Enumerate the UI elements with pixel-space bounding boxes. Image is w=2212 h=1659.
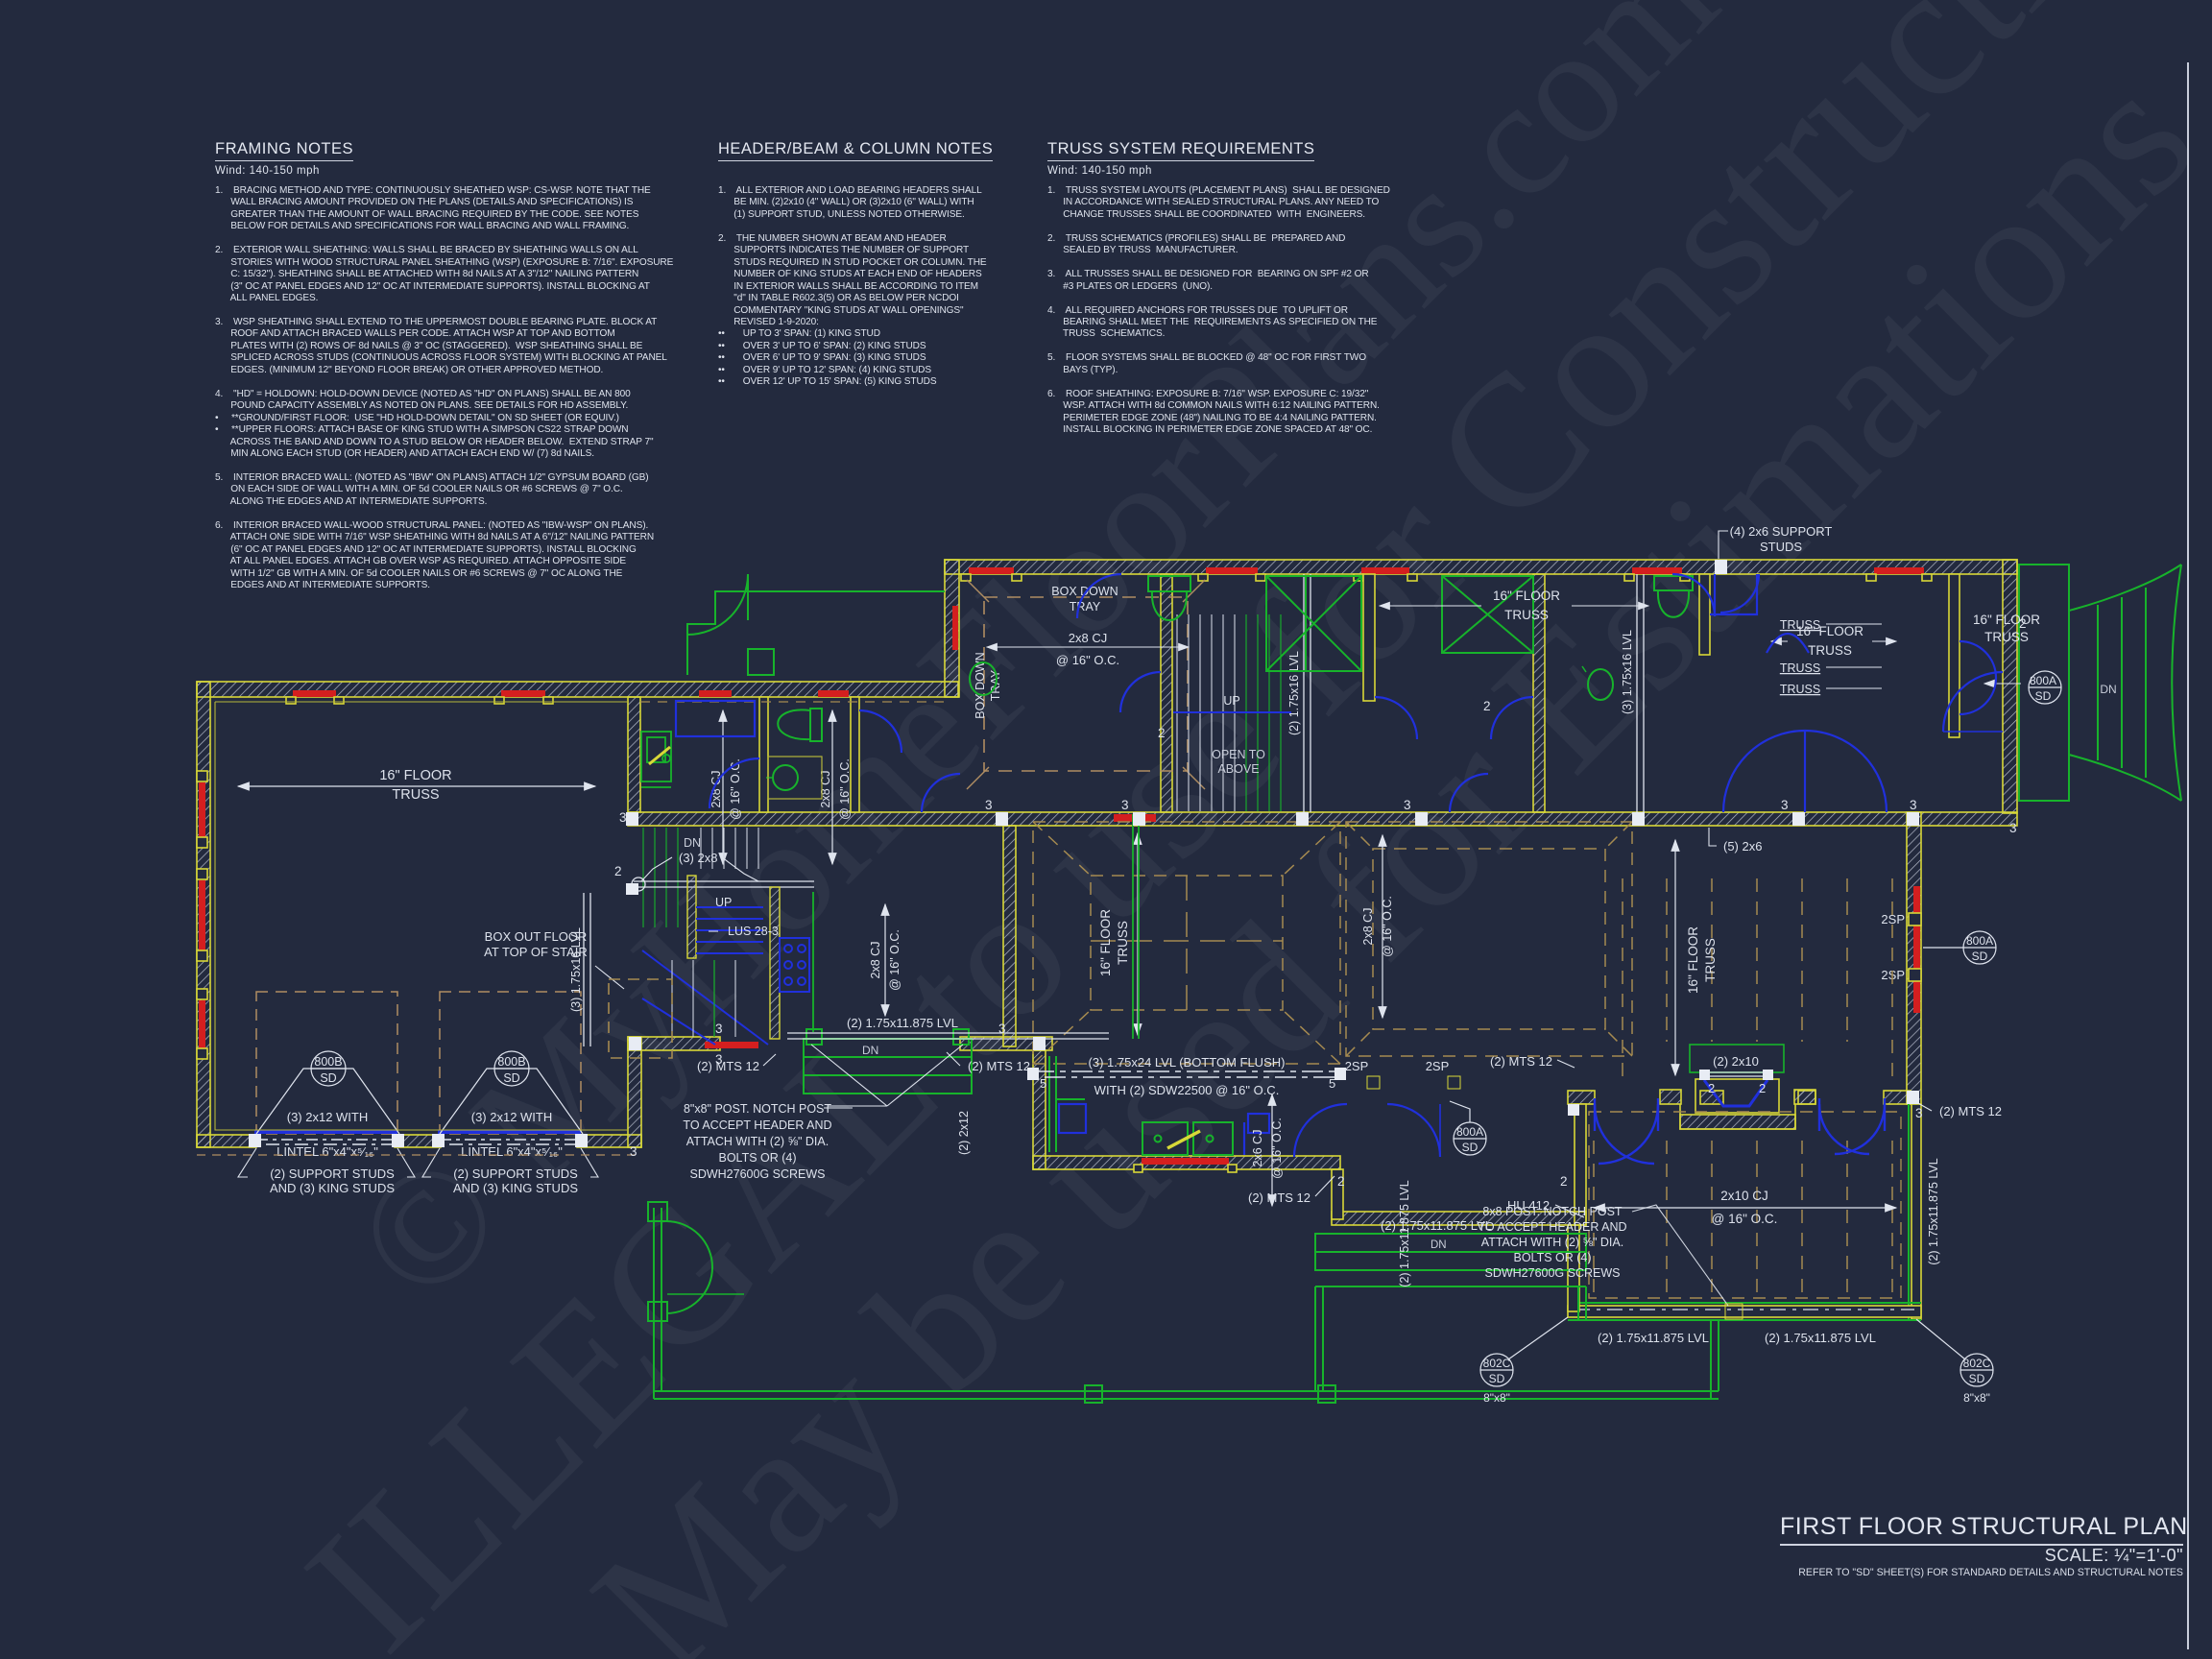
svg-text:16" FLOOR: 16" FLOOR	[379, 768, 451, 783]
svg-text:OPEN TO: OPEN TO	[1212, 748, 1265, 761]
svg-text:3: 3	[1404, 798, 1411, 812]
svg-text:@ 16" O.C.: @ 16" O.C.	[1270, 1118, 1284, 1179]
svg-text:SD: SD	[1489, 1372, 1505, 1385]
svg-text:TRUSS: TRUSS	[1780, 661, 1820, 675]
svg-text:802C: 802C	[1963, 1357, 1991, 1370]
svg-text:(2) MTS 12: (2) MTS 12	[1490, 1054, 1552, 1069]
svg-text:(2) MTS 12: (2) MTS 12	[968, 1059, 1030, 1073]
svg-text:8x8 POST. NOTCH POST: 8x8 POST. NOTCH POST	[1482, 1205, 1623, 1218]
svg-text:2: 2	[614, 864, 622, 878]
svg-text:AND (3) KING STUDS: AND (3) KING STUDS	[453, 1181, 578, 1195]
svg-text:(3) 2x8: (3) 2x8	[679, 851, 717, 865]
svg-text:TRUSS: TRUSS	[1984, 630, 2029, 644]
svg-text:16" FLOOR: 16" FLOOR	[1098, 909, 1113, 976]
svg-text:(2) MTS 12: (2) MTS 12	[1939, 1104, 2002, 1118]
svg-text:16" FLOOR: 16" FLOOR	[1973, 613, 2040, 627]
svg-text:(2) 1.75x11.875 LVL: (2) 1.75x11.875 LVL	[847, 1016, 958, 1030]
svg-text:AT TOP OF STAIR: AT TOP OF STAIR	[484, 945, 588, 959]
svg-text:(3) 1.75x24 LVL (BOTTOM FLUSH): (3) 1.75x24 LVL (BOTTOM FLUSH)	[1089, 1055, 1286, 1070]
svg-text:800B: 800B	[497, 1055, 525, 1069]
svg-text:ATTACH WITH (2) ⅝" DIA.: ATTACH WITH (2) ⅝" DIA.	[686, 1135, 829, 1148]
svg-text:SD: SD	[1972, 950, 1988, 963]
svg-text:2x6 CJ: 2x6 CJ	[1251, 1130, 1264, 1167]
svg-text:2x8 CJ: 2x8 CJ	[819, 771, 832, 808]
svg-text:2: 2	[1337, 1174, 1345, 1189]
svg-text:2: 2	[1708, 1081, 1715, 1095]
svg-text:SD: SD	[320, 1071, 336, 1085]
svg-text:TRUSS: TRUSS	[392, 787, 439, 803]
svg-text:3: 3	[998, 1022, 1006, 1036]
svg-text:(3) 2x12 WITH: (3) 2x12 WITH	[471, 1110, 553, 1124]
svg-text:3: 3	[1910, 798, 1917, 812]
svg-text:3: 3	[715, 1052, 723, 1067]
svg-text:(3) 2x12 WITH: (3) 2x12 WITH	[287, 1110, 369, 1124]
svg-text:3: 3	[1781, 798, 1789, 812]
svg-text:WITH (2) SDW22500 @ 16" O.C.: WITH (2) SDW22500 @ 16" O.C.	[1094, 1083, 1280, 1097]
svg-text:3: 3	[619, 810, 627, 825]
svg-text:(2) 1.75x11.875 LVL: (2) 1.75x11.875 LVL	[1598, 1331, 1709, 1345]
svg-text:2: 2	[1560, 1174, 1568, 1189]
svg-text:(2) 1.75x11.875 LVL: (2) 1.75x11.875 LVL	[1398, 1180, 1411, 1286]
svg-text:UP: UP	[1223, 694, 1239, 708]
svg-text:LINTEL 6"x4"x⁵⁄₁₆": LINTEL 6"x4"x⁵⁄₁₆"	[276, 1144, 378, 1159]
svg-text:DN: DN	[684, 836, 701, 850]
svg-text:AND (3) KING STUDS: AND (3) KING STUDS	[270, 1181, 395, 1195]
svg-text:BOLTS OR (4): BOLTS OR (4)	[1513, 1251, 1591, 1264]
svg-text:802C: 802C	[1483, 1357, 1511, 1370]
svg-text:3: 3	[985, 798, 993, 812]
svg-text:2x8 CJ: 2x8 CJ	[1361, 908, 1375, 946]
svg-text:2: 2	[1158, 726, 1166, 740]
svg-text:3: 3	[1121, 798, 1129, 812]
svg-text:(2) 1.75x11.875 LVL: (2) 1.75x11.875 LVL	[1927, 1158, 1940, 1264]
svg-text:2x8 CJ: 2x8 CJ	[1069, 631, 1107, 645]
svg-text:BOX OUT FLOOR: BOX OUT FLOOR	[485, 929, 588, 944]
svg-text:SD: SD	[503, 1071, 519, 1085]
svg-text:(2) 1.75x16 LVL: (2) 1.75x16 LVL	[1287, 651, 1301, 735]
svg-text:(5) 2x6: (5) 2x6	[1723, 839, 1762, 854]
svg-text:@ 16" O.C.: @ 16" O.C.	[1056, 653, 1119, 667]
svg-text:UP: UP	[715, 896, 732, 909]
svg-text:TRUSS: TRUSS	[1504, 608, 1549, 622]
svg-text:2SP: 2SP	[1426, 1059, 1450, 1073]
svg-text:(2) 2x10: (2) 2x10	[1713, 1054, 1759, 1069]
svg-text:TRUSS: TRUSS	[1703, 938, 1718, 982]
svg-text:(2) 2x12: (2) 2x12	[957, 1111, 971, 1155]
svg-text:3: 3	[1915, 1106, 1923, 1120]
svg-text:(2) MTS 12: (2) MTS 12	[1248, 1190, 1310, 1205]
svg-text:(2) SUPPORT STUDS: (2) SUPPORT STUDS	[270, 1166, 395, 1181]
svg-text:@ 16" O.C.: @ 16" O.C.	[1381, 896, 1394, 957]
svg-text:@ 16" O.C.: @ 16" O.C.	[888, 929, 902, 991]
svg-text:(2) MTS 12: (2) MTS 12	[697, 1059, 759, 1073]
svg-text:800B: 800B	[314, 1055, 342, 1069]
svg-text:STUDS: STUDS	[1760, 540, 1802, 554]
svg-text:800A: 800A	[1966, 934, 1993, 948]
svg-text:SDWH27600G SCREWS: SDWH27600G SCREWS	[689, 1167, 825, 1181]
svg-text:DN: DN	[862, 1044, 878, 1057]
svg-text:TRAY: TRAY	[1070, 600, 1101, 613]
svg-text:DN: DN	[2100, 683, 2116, 696]
svg-text:ABOVE: ABOVE	[1217, 762, 1259, 776]
svg-text:800A: 800A	[2030, 674, 2056, 687]
svg-text:16" FLOOR: 16" FLOOR	[1686, 926, 1700, 994]
svg-text:SD: SD	[2035, 689, 2052, 703]
svg-text:DN: DN	[1431, 1239, 1447, 1251]
svg-text:TRUSS: TRUSS	[1116, 921, 1130, 965]
svg-text:TRUSS: TRUSS	[1808, 643, 1852, 658]
svg-text:8"x8": 8"x8"	[1963, 1391, 1990, 1405]
svg-text:ATTACH WITH (2) ⅝" DIA.: ATTACH WITH (2) ⅝" DIA.	[1481, 1236, 1623, 1249]
svg-text:3: 3	[715, 1022, 723, 1036]
svg-text:LINTEL 6"x4"x⁵⁄₁₆": LINTEL 6"x4"x⁵⁄₁₆"	[461, 1144, 563, 1159]
svg-text:SD: SD	[1969, 1372, 1985, 1385]
svg-text:16" FLOOR: 16" FLOOR	[1493, 589, 1560, 603]
svg-text:LUS 28-3: LUS 28-3	[728, 925, 779, 938]
svg-text:@ 16" O.C.: @ 16" O.C.	[1712, 1212, 1778, 1226]
svg-text:5: 5	[1040, 1076, 1046, 1091]
svg-text:2: 2	[1483, 699, 1491, 713]
svg-text:3: 3	[630, 1144, 637, 1159]
svg-text:TO ACCEPT HEADER AND: TO ACCEPT HEADER AND	[1478, 1220, 1626, 1234]
svg-text:2x10 CJ: 2x10 CJ	[1720, 1189, 1768, 1203]
svg-text:(4) 2x6 SUPPORT: (4) 2x6 SUPPORT	[1730, 524, 1833, 539]
svg-text:(3) 1.75x16 LVL: (3) 1.75x16 LVL	[1621, 630, 1634, 714]
svg-text:TRUSS: TRUSS	[1780, 683, 1820, 696]
svg-text:2x8 CJ: 2x8 CJ	[869, 942, 882, 979]
svg-text:(2) 1.75x11.875 LVL: (2) 1.75x11.875 LVL	[1765, 1331, 1876, 1345]
svg-text:@ 16" O.C.: @ 16" O.C.	[838, 758, 852, 820]
svg-text:TO ACCEPT HEADER AND: TO ACCEPT HEADER AND	[683, 1118, 831, 1132]
svg-text:2SP: 2SP	[1345, 1059, 1369, 1073]
svg-text:800A: 800A	[1456, 1125, 1483, 1139]
svg-text:8"x8" POST. NOTCH POST: 8"x8" POST. NOTCH POST	[684, 1102, 831, 1116]
svg-text:SDWH27600G SCREWS: SDWH27600G SCREWS	[1484, 1266, 1620, 1280]
svg-text:SD: SD	[1462, 1141, 1479, 1154]
svg-text:BOLTS OR (4): BOLTS OR (4)	[718, 1151, 796, 1165]
svg-text:8"x8": 8"x8"	[1483, 1391, 1510, 1405]
svg-text:(2) SUPPORT STUDS: (2) SUPPORT STUDS	[453, 1166, 578, 1181]
svg-text:2: 2	[1759, 1081, 1766, 1095]
svg-text:TRUSS: TRUSS	[1780, 618, 1820, 632]
svg-text:2: 2	[2019, 616, 2027, 631]
svg-text:3: 3	[2009, 821, 2017, 835]
svg-text:BOX DOWN: BOX DOWN	[1051, 585, 1118, 598]
